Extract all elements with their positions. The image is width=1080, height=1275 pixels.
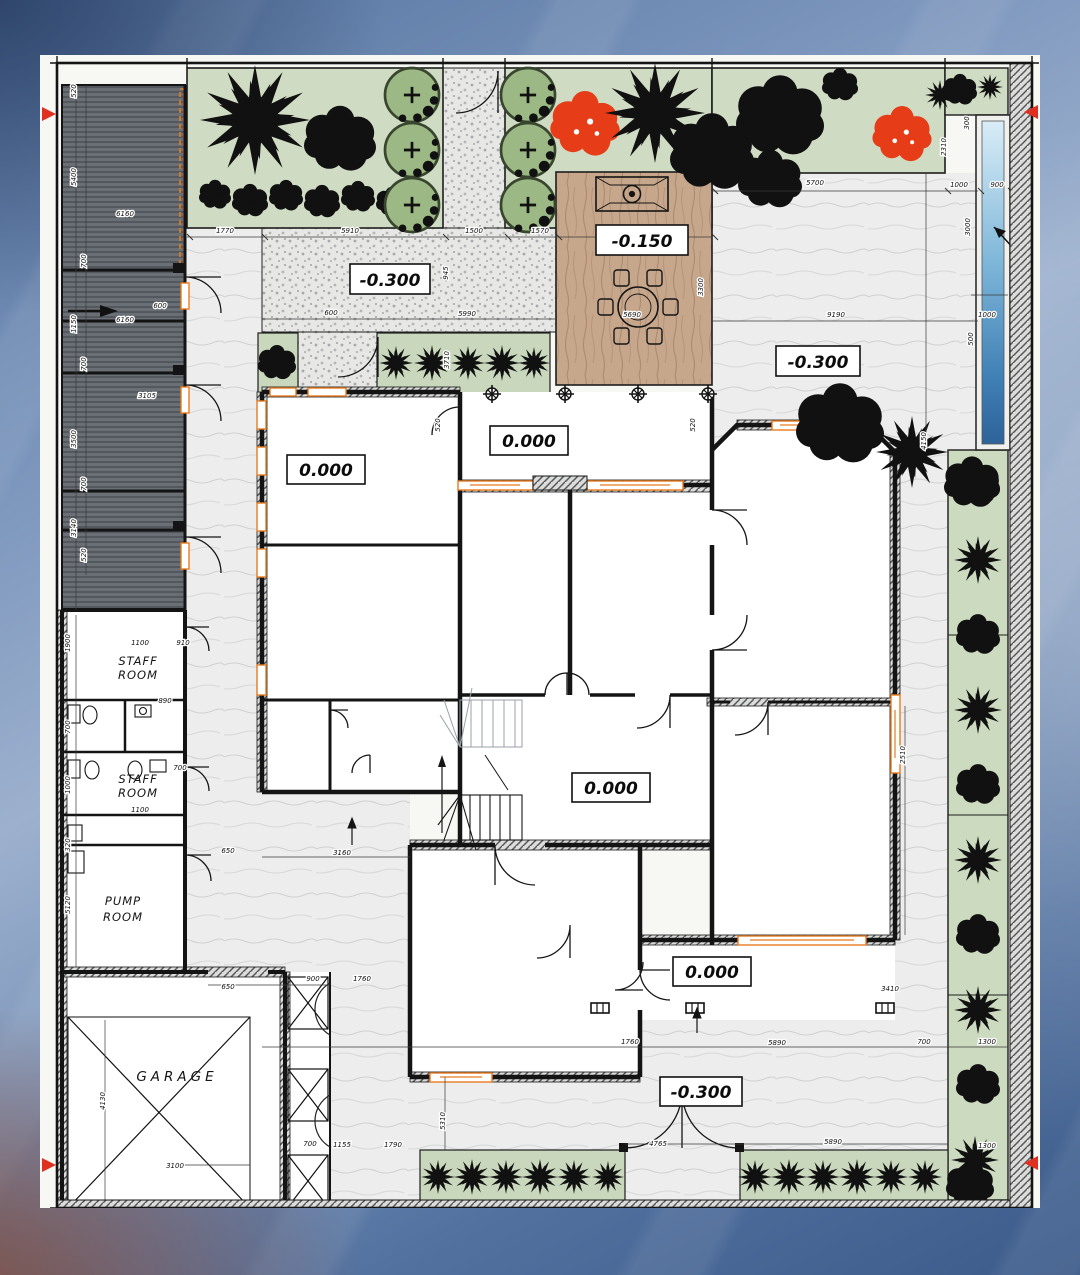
dimension-text: 890 (158, 697, 172, 705)
dimension-text: 1500 (465, 227, 483, 235)
dimension-text: 1790 (384, 1141, 402, 1149)
dimension-text: 1770 (216, 227, 234, 235)
wood-terrace (556, 172, 712, 385)
dimension-text: 520 (434, 418, 442, 432)
dimension-text: 5890 (768, 1039, 786, 1047)
dimension-text: 1155 (333, 1141, 351, 1149)
pergola-carport-strip (62, 85, 185, 610)
dimension-text: 5700 (806, 179, 824, 187)
dimension-text: 1900 (64, 634, 72, 652)
dimension-text: 700 (917, 1038, 931, 1046)
floor-plan-drawing: -0.300 -0.150 -0.300 0.000 0.000 0.000 0… (40, 55, 1040, 1208)
svg-text:0.000: 0.000 (299, 461, 353, 481)
dimension-text: 4130 (99, 1092, 107, 1110)
dimension-text: 1000 (64, 776, 72, 794)
dimension-text: 1150 (70, 315, 78, 333)
elevation-veranda: 0.000 (490, 426, 568, 455)
elevation-plaza: -0.300 (350, 264, 430, 294)
dimension-text: 3140 (70, 519, 78, 537)
dimension-text: 300 (963, 116, 971, 130)
dimension-text: 910 (176, 639, 190, 647)
dimension-text: 600 (153, 302, 167, 310)
dimension-text: 900 (306, 975, 320, 983)
dimension-text: 520 (689, 418, 697, 432)
garage-label: GARAGE (136, 1069, 217, 1085)
elevation-left-room: 0.000 (287, 455, 365, 484)
dimension-text: 650 (221, 847, 235, 855)
staff-room-1-label: STAFF (118, 654, 157, 668)
elevation-hall: 0.000 (572, 773, 650, 802)
dimension-text: 700 (80, 254, 88, 268)
dimension-text: 3300 (697, 278, 705, 296)
elevation-lower-court: -0.300 (660, 1077, 742, 1106)
dimension-text: 2310 (940, 138, 948, 156)
dimension-text: 4765 (649, 1140, 667, 1148)
dimension-text: 3105 (138, 392, 156, 400)
svg-text:0.000: 0.000 (685, 963, 739, 983)
dimension-text: 5990 (458, 310, 476, 318)
dimension-text: 1760 (621, 1038, 639, 1046)
svg-text:-0.300: -0.300 (671, 1083, 732, 1103)
dimension-text: 4150 (920, 432, 928, 450)
staff-room-2-label: STAFF (118, 772, 157, 786)
svg-text:0.000: 0.000 (584, 779, 638, 799)
dimension-text: 1000 (978, 311, 996, 319)
dimension-text: 3000 (964, 218, 972, 236)
dimension-text: 700 (173, 764, 187, 772)
elevation-terrace: -0.150 (596, 225, 688, 255)
elevation-porch: 0.000 (673, 957, 751, 986)
dimension-text: 1300 (978, 1038, 996, 1046)
dimension-text: 5310 (439, 1112, 447, 1130)
dimension-text: 1000 (950, 181, 968, 189)
dimension-text: 1100 (131, 806, 149, 814)
pump-room-label: PUMP (105, 894, 141, 908)
dimension-text: 3410 (881, 985, 899, 993)
dimension-text: 500 (967, 332, 975, 346)
dimension-text: 700 (80, 477, 88, 491)
svg-text:-0.150: -0.150 (612, 232, 673, 252)
dimension-text: 9190 (827, 311, 845, 319)
svg-text:-0.300: -0.300 (788, 353, 849, 373)
dimension-text: 3100 (166, 1162, 184, 1170)
dimension-text: 700 (80, 357, 88, 371)
dimension-text: 3710 (443, 351, 451, 369)
dimension-text: 5690 (623, 311, 641, 319)
dimension-text: 520 (80, 548, 88, 562)
dimension-text: 650 (221, 983, 235, 991)
svg-text:ROOM: ROOM (118, 786, 158, 800)
dimension-text: 945 (442, 266, 450, 280)
dimension-text: 900 (990, 181, 1004, 189)
dimension-text: 5910 (341, 227, 359, 235)
svg-text:0.000: 0.000 (502, 432, 556, 452)
dimension-text: 5890 (824, 1138, 842, 1146)
svg-text:ROOM: ROOM (103, 910, 143, 924)
dimension-text: 600 (324, 309, 338, 317)
svg-text:-0.300: -0.300 (360, 271, 421, 291)
dimension-text: 320 (64, 838, 72, 852)
svg-text:ROOM: ROOM (118, 668, 158, 682)
dimension-text: 1760 (353, 975, 371, 983)
dimension-text: 700 (64, 720, 72, 734)
dimension-text: 1570 (531, 227, 549, 235)
dimension-text: 1100 (131, 639, 149, 647)
canopy-tree-icon (385, 68, 439, 122)
dimension-text: 520 (70, 84, 78, 98)
dimension-text: 1300 (978, 1142, 996, 1150)
dimension-text: 700 (303, 1140, 317, 1148)
dimension-text: 6160 (116, 316, 134, 324)
plan-sheet: -0.300 -0.150 -0.300 0.000 0.000 0.000 0… (40, 55, 1040, 1208)
dimension-text: 3500 (70, 430, 78, 448)
dimension-text: 5120 (64, 896, 72, 914)
dimension-text: 3160 (333, 849, 351, 857)
dimension-text: 6160 (116, 210, 134, 218)
dimension-text: 5400 (70, 168, 78, 186)
dimension-text: 2510 (899, 746, 907, 764)
elevation-right-court: -0.300 (776, 346, 860, 376)
